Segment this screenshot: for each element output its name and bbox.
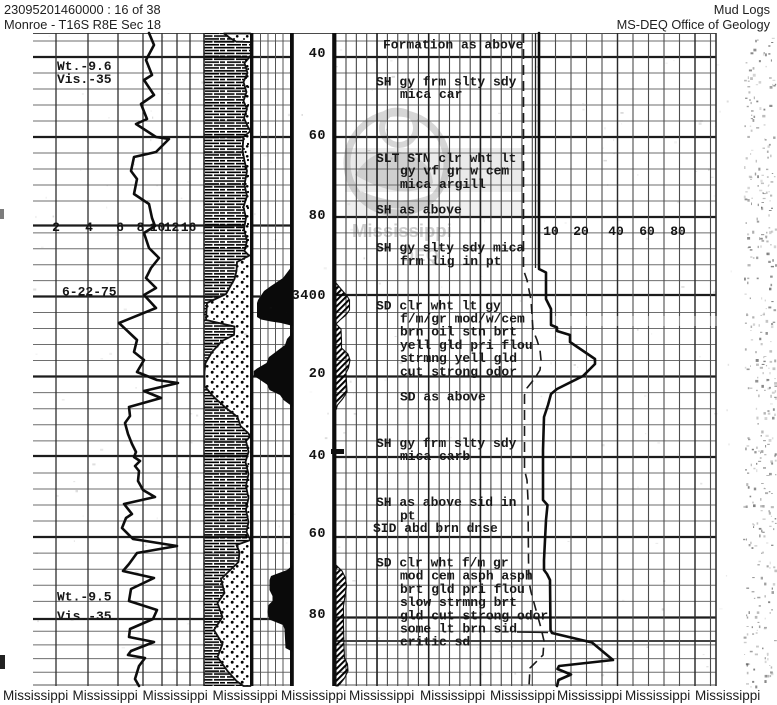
svg-text:60: 60 bbox=[309, 129, 326, 144]
svg-text:20: 20 bbox=[309, 367, 326, 382]
svg-text:80: 80 bbox=[309, 209, 326, 224]
svg-text:3400: 3400 bbox=[292, 289, 326, 304]
svg-text:cut strong odor: cut strong odor bbox=[400, 365, 517, 380]
svg-text:Mississippi: Mississippi bbox=[349, 688, 414, 703]
svg-text:6-22-75: 6-22-75 bbox=[62, 285, 117, 300]
svg-text:80: 80 bbox=[309, 608, 326, 623]
svg-text:40: 40 bbox=[309, 449, 326, 464]
svg-text:6: 6 bbox=[116, 220, 124, 235]
svg-text:Mississippi: Mississippi bbox=[73, 688, 138, 703]
svg-text:12: 12 bbox=[164, 220, 180, 235]
svg-text:mica carb: mica carb bbox=[400, 449, 470, 464]
svg-text:MS-DEQ Office of Geology: MS-DEQ Office of Geology bbox=[617, 17, 771, 32]
svg-text:Monroe - T16S R8E Sec 18: Monroe - T16S R8E Sec 18 bbox=[4, 17, 161, 32]
svg-text:40: 40 bbox=[608, 224, 624, 239]
svg-text:2: 2 bbox=[52, 220, 60, 235]
svg-text:10: 10 bbox=[543, 224, 559, 239]
svg-text:80: 80 bbox=[670, 224, 686, 239]
svg-text:Mississippi: Mississippi bbox=[281, 688, 346, 703]
svg-text:4: 4 bbox=[85, 220, 93, 235]
svg-text:Mississippi: Mississippi bbox=[625, 688, 690, 703]
svg-text:eritic sd: eritic sd bbox=[400, 635, 470, 650]
svg-text:23095201460000 : 16 of 38: 23095201460000 : 16 of 38 bbox=[4, 2, 161, 17]
svg-text:frm lig in pt: frm lig in pt bbox=[400, 254, 501, 269]
svg-text:Mississippi: Mississippi bbox=[3, 688, 68, 703]
svg-text:20: 20 bbox=[573, 224, 589, 239]
svg-text:Formation as above: Formation as above bbox=[383, 38, 524, 53]
svg-text:Vis.-35: Vis.-35 bbox=[57, 72, 112, 87]
svg-text:mica car: mica car bbox=[400, 87, 462, 102]
svg-text:Mississippi: Mississippi bbox=[213, 688, 278, 703]
svg-text:SH as above: SH as above bbox=[376, 203, 462, 218]
svg-text:Mississippi: Mississippi bbox=[490, 688, 555, 703]
svg-text:Wt.-9.5: Wt.-9.5 bbox=[57, 590, 112, 605]
svg-text:60: 60 bbox=[309, 527, 326, 542]
svg-text:60: 60 bbox=[639, 224, 655, 239]
svg-text:Mississippi: Mississippi bbox=[695, 688, 760, 703]
svg-text:Mississippi: Mississippi bbox=[557, 688, 622, 703]
svg-text:SD as above: SD as above bbox=[400, 390, 486, 405]
svg-text:mica argill: mica argill bbox=[400, 177, 486, 192]
svg-text:Mississippi: Mississippi bbox=[420, 688, 485, 703]
svg-text:16: 16 bbox=[181, 220, 197, 235]
svg-text:SID abd brn dnse: SID abd brn dnse bbox=[373, 521, 498, 536]
svg-text:Mud Logs: Mud Logs bbox=[714, 2, 770, 17]
svg-text:Vis.-35: Vis.-35 bbox=[57, 609, 112, 624]
svg-text:Mississippi: Mississippi bbox=[143, 688, 208, 703]
svg-text:40: 40 bbox=[309, 47, 326, 62]
svg-text:SH as above sid in: SH as above sid in bbox=[376, 495, 517, 510]
